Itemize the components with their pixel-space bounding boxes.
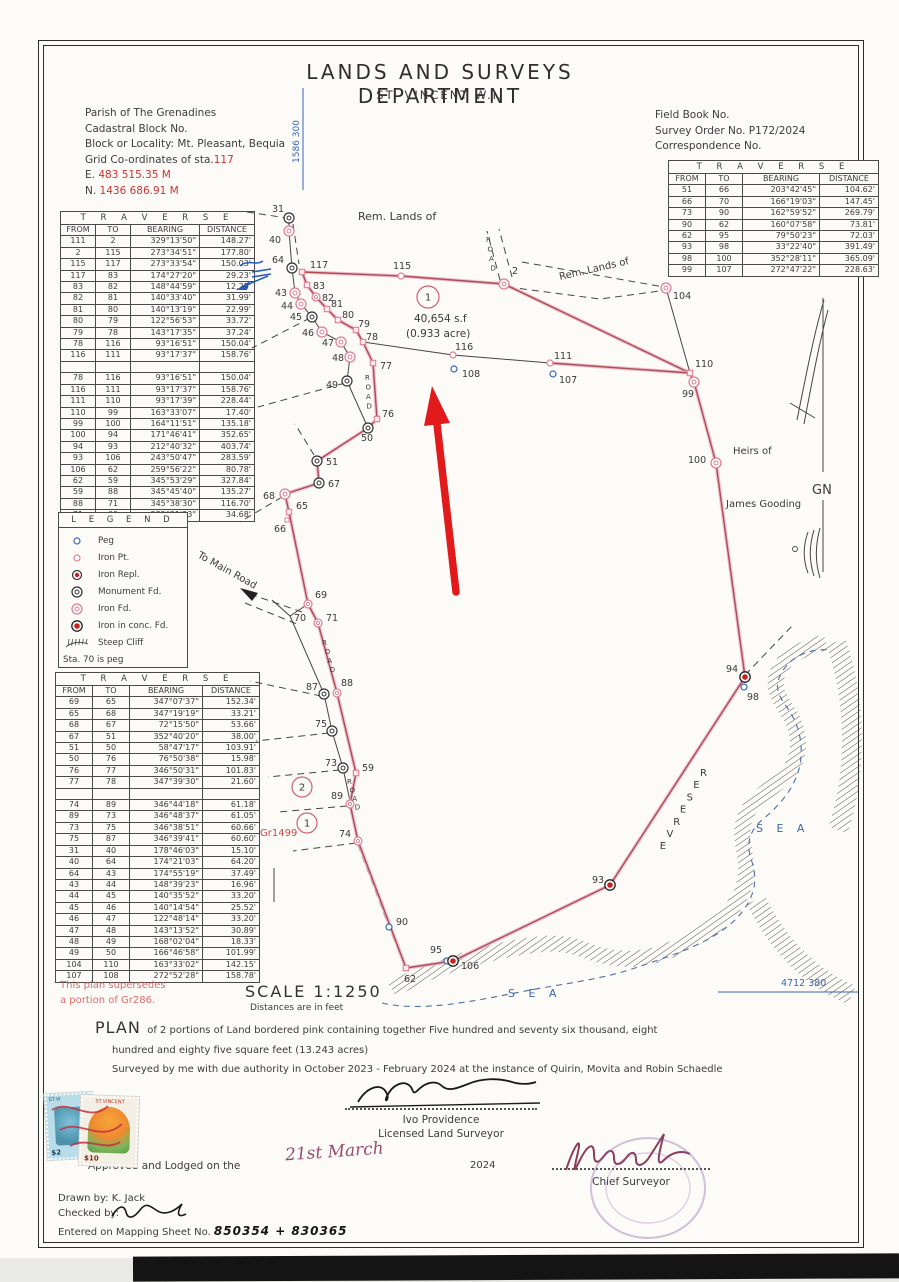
table-row: 1112329°13'50"148.27' xyxy=(61,236,255,247)
table-cell: 140°13'19" xyxy=(131,304,200,315)
legend-box: L E G E N D PegIron Pt.Iron Repl.Monumen… xyxy=(58,512,188,668)
table-cell: 66 xyxy=(669,196,706,207)
survey-order-line: Survey Order No. P172/2024 xyxy=(655,124,805,140)
table-cell: 110 xyxy=(96,396,131,407)
table-cell: 58°47'17" xyxy=(130,743,203,754)
legend-item-label: Monument Fd. xyxy=(98,587,161,597)
table-cell: 142.15' xyxy=(203,959,260,970)
table-cell xyxy=(96,361,131,372)
table-cell: 73 xyxy=(669,208,706,219)
table-cell: 228.63' xyxy=(820,265,879,276)
table-row: 5988345°45'40"135.27' xyxy=(61,487,255,498)
table-row: 4748143°13'52"30.89' xyxy=(56,925,260,936)
table-cell: 99 xyxy=(96,407,131,418)
table-cell: 59 xyxy=(96,475,131,486)
table-cell: 48 xyxy=(93,925,130,936)
table-cell: 95 xyxy=(706,231,743,242)
table-cell xyxy=(93,788,130,799)
table-cell: 178°46'03" xyxy=(130,845,203,856)
table-cell: 327.84' xyxy=(200,475,255,486)
table-row: 11111093°17'39"228.44' xyxy=(61,396,255,407)
table-cell: 89 xyxy=(56,811,93,822)
table-cell: 59 xyxy=(61,487,96,498)
table-cell: 21.60' xyxy=(203,777,260,788)
table-cell: 78 xyxy=(61,339,96,350)
table-cell: 89 xyxy=(93,800,130,811)
table-cell xyxy=(203,788,260,799)
table-cell: 93 xyxy=(96,441,131,452)
iron_conc-icon xyxy=(65,619,89,633)
table-cell: 62 xyxy=(706,219,743,230)
table-cell: 46 xyxy=(93,902,130,913)
table-title: T R A V E R S E xyxy=(56,673,260,686)
traverse-table-left-upper: T R A V E R S EFROMTOBEARINGDISTANCE1112… xyxy=(60,211,255,522)
table-cell: 104 xyxy=(56,959,93,970)
table-row: 2115273°34'51"177.80' xyxy=(61,247,255,258)
table-cell: 79 xyxy=(96,316,131,327)
table-cell: 162°59'52" xyxy=(743,208,820,219)
table-cell: 68 xyxy=(56,720,93,731)
table-cell: 122°48'14" xyxy=(130,914,203,925)
table-cell: 93°16'51" xyxy=(131,339,200,350)
table-cell: 70 xyxy=(706,196,743,207)
table-cell: 60.60' xyxy=(203,834,260,845)
legend-item-label: Iron Fd. xyxy=(98,604,131,614)
table-cell: 94 xyxy=(61,441,96,452)
table-cell: 99 xyxy=(669,265,706,276)
column-header: BEARING xyxy=(743,174,820,185)
table-row: 11783174°27'20"29.23' xyxy=(61,270,255,281)
legend-item-label: Iron Pt. xyxy=(98,553,129,563)
table-cell: 116.70' xyxy=(200,498,255,509)
table-cell: 33.21' xyxy=(203,708,260,719)
table-cell: 49 xyxy=(56,948,93,959)
table-cell: 106 xyxy=(61,464,96,475)
table-cell: 345°53'29" xyxy=(131,475,200,486)
legend-item: Iron Pt. xyxy=(59,549,187,566)
table-cell: 107 xyxy=(706,265,743,276)
legend-note: Sta. 70 is peg xyxy=(59,651,187,667)
column-header: BEARING xyxy=(131,225,200,236)
table-cell: 352°28'11" xyxy=(743,253,820,264)
table-cell: 347°39'30" xyxy=(130,777,203,788)
table-cell: 31.99' xyxy=(200,293,255,304)
table-row: 9493212°40'32"403.74' xyxy=(61,441,255,452)
table-cell xyxy=(131,361,200,372)
table-cell: 116 xyxy=(61,384,96,395)
table-cell: 203°42'45" xyxy=(743,185,820,196)
table-cell: 347°19'19" xyxy=(130,708,203,719)
table-cell: 80 xyxy=(96,304,131,315)
approved-year: 2024 xyxy=(470,1160,495,1171)
table-cell: 346°39'41" xyxy=(130,834,203,845)
table-row: 4344148°39'23"16.96' xyxy=(56,879,260,890)
table-cell: 177.80' xyxy=(200,247,255,258)
table-row: 7811693°16'51"150.04' xyxy=(61,373,255,384)
table-cell: 150.03' xyxy=(200,259,255,270)
table-cell: 346°38'51" xyxy=(130,822,203,833)
table-cell: 122°56'53" xyxy=(131,316,200,327)
table-cell: 18.33' xyxy=(203,936,260,947)
table-cell: 166°46'58" xyxy=(130,948,203,959)
table-cell: 391.49' xyxy=(820,242,879,253)
table-cell: 17.40' xyxy=(200,407,255,418)
table-cell: 69 xyxy=(56,697,93,708)
table-row: 6443174°55'19"37.49' xyxy=(56,868,260,879)
legend-item: Iron Fd. xyxy=(59,600,187,617)
table-row: 7677346°50'31"101.83' xyxy=(56,765,260,776)
table-cell: 212°40'32" xyxy=(131,441,200,452)
table-cell: 88 xyxy=(96,487,131,498)
table-cell: 62 xyxy=(96,464,131,475)
table-cell: 98 xyxy=(669,253,706,264)
table-cell: 15.10' xyxy=(203,845,260,856)
table-cell: 93 xyxy=(61,453,96,464)
table-row: 507676°50'38"15.98' xyxy=(56,754,260,765)
table-cell: 174°55'19" xyxy=(130,868,203,879)
legend-item: Monument Fd. xyxy=(59,583,187,600)
table-cell: 273°33'54" xyxy=(131,259,200,270)
table-cell: 174°27'20" xyxy=(131,270,200,281)
table-cell: 72.03' xyxy=(820,231,879,242)
table-cell: 79°50'23" xyxy=(743,231,820,242)
table-cell: 34.68' xyxy=(200,510,255,521)
traverse-table-right: T R A V E R S EFROMTOBEARINGDISTANCE5166… xyxy=(668,160,879,277)
drawn-by: Drawn by: K. Jack xyxy=(58,1193,145,1204)
table-row: 6568347°19'19"33.21' xyxy=(56,708,260,719)
table-cell: 116 xyxy=(61,350,96,361)
table-cell: 135.18' xyxy=(200,418,255,429)
table-cell: 101.99' xyxy=(203,948,260,959)
table-cell: 29.23' xyxy=(200,270,255,281)
table-cell: 117 xyxy=(61,270,96,281)
table-cell: 150.04' xyxy=(200,339,255,350)
table-row: 104110163°33'02"142.15' xyxy=(56,959,260,970)
table-row: 8281140°33'40"31.99' xyxy=(61,293,255,304)
table-cell: 37.49' xyxy=(203,868,260,879)
table-cell: 80.78' xyxy=(200,464,255,475)
table-cell: 31 xyxy=(56,845,93,856)
table-row: 4064174°21'03"64.20' xyxy=(56,857,260,868)
table-row: 7587346°39'41"60.60' xyxy=(56,834,260,845)
legend-item-label: Iron in conc. Fd. xyxy=(98,621,168,631)
table-row xyxy=(61,361,255,372)
grid-coords-line: Grid Co-ordinates of sta.117 xyxy=(85,153,285,169)
table-cell: 43 xyxy=(56,879,93,890)
table-row: 115117273°33'54"150.03' xyxy=(61,259,255,270)
table-cell: 76 xyxy=(56,765,93,776)
table-cell: 283.59' xyxy=(200,453,255,464)
table-row: 7489346°44'18"61.18' xyxy=(56,800,260,811)
table-row: 8079122°56'53"33.72' xyxy=(61,316,255,327)
legend-item-label: Peg xyxy=(98,536,114,546)
table-row: 99100164°11'51"135.18' xyxy=(61,418,255,429)
checked-by: Checked by: xyxy=(58,1208,119,1219)
table-cell: 37.24' xyxy=(200,327,255,338)
column-header: FROM xyxy=(56,686,93,697)
table-cell: 158.76' xyxy=(200,350,255,361)
table-cell: 168°02'04" xyxy=(130,936,203,947)
table-row: 99107272°47'22"228.63' xyxy=(669,265,879,276)
table-row: 7375346°38'51"60.66' xyxy=(56,822,260,833)
mapping-sheet-line: Entered on Mapping Sheet No. 850354 + 83… xyxy=(58,1224,348,1238)
table-cell: 273°34'51" xyxy=(131,247,200,258)
table-row: 9062160°07'58"73.81' xyxy=(669,219,879,230)
table-cell: 60.66' xyxy=(203,822,260,833)
table-cell: 33°22'40" xyxy=(743,242,820,253)
table-row: 7811693°16'51"150.04' xyxy=(61,339,255,350)
table-cell: 346°48'37" xyxy=(130,811,203,822)
table-cell: 98 xyxy=(706,242,743,253)
table-row: 8871345°38'30"116.70' xyxy=(61,498,255,509)
table-cell: 345°38'30" xyxy=(131,498,200,509)
table-cell: 104.62' xyxy=(820,185,879,196)
table-cell: 365.09' xyxy=(820,253,879,264)
table-row: 4445140°35'52"33.20' xyxy=(56,891,260,902)
table-cell: 62 xyxy=(61,475,96,486)
table-cell: 329°13'50" xyxy=(131,236,200,247)
parish-line: Parish of The Grenadines xyxy=(85,106,285,122)
table-cell: 46 xyxy=(56,914,93,925)
table-cell: 100 xyxy=(706,253,743,264)
table-cell xyxy=(56,788,93,799)
table-cell: 72°15'50" xyxy=(130,720,203,731)
table-title: T R A V E R S E xyxy=(669,161,879,174)
column-header: DISTANCE xyxy=(820,174,879,185)
table-cell: 82 xyxy=(96,282,131,293)
mapping-numbers-handwritten: 850354 + 830365 xyxy=(214,1224,348,1238)
table-cell: 88 xyxy=(61,498,96,509)
column-header: DISTANCE xyxy=(200,225,255,236)
table-cell: 33.20' xyxy=(203,914,260,925)
table-cell: 160°07'58" xyxy=(743,219,820,230)
table-cell: 93°17'37" xyxy=(131,350,200,361)
table-cell: 61.05' xyxy=(203,811,260,822)
table-cell: 82 xyxy=(61,293,96,304)
table-cell: 47 xyxy=(93,914,130,925)
table-cell: 33.72' xyxy=(200,316,255,327)
table-cell: 71 xyxy=(96,498,131,509)
table-cell: 64 xyxy=(56,868,93,879)
table-cell: 45 xyxy=(93,891,130,902)
table-cell: 166°19'03" xyxy=(743,196,820,207)
table-row: 3140178°46'03"15.10' xyxy=(56,845,260,856)
table-cell: 51 xyxy=(669,185,706,196)
table-cell: 80 xyxy=(61,316,96,327)
table-row: 5166203°42'45"104.62' xyxy=(669,185,879,196)
easting-line: E. 483 515.35 M xyxy=(85,168,285,184)
scale-label: SCALE 1:1250 xyxy=(245,982,382,1001)
table-cell: 115 xyxy=(96,247,131,258)
table-cell: 25.52' xyxy=(203,902,260,913)
stamp-right-country: ST.VINCENT xyxy=(83,1097,137,1106)
table-row: 11611193°17'37"158.76' xyxy=(61,384,255,395)
table-cell: 93 xyxy=(669,242,706,253)
table-row: 7978143°17'35"37.24' xyxy=(61,327,255,338)
table-row: 98100352°28'11"365.09' xyxy=(669,253,879,264)
column-header: TO xyxy=(96,225,131,236)
legend-item: Iron in conc. Fd. xyxy=(59,617,187,634)
table-row: 8382148°44'59"12.25' xyxy=(61,282,255,293)
table-cell: 40 xyxy=(56,857,93,868)
legend-item: Steep Cliff xyxy=(59,634,187,651)
table-cell: 163°33'07" xyxy=(131,407,200,418)
table-cell: 148°39'23" xyxy=(130,879,203,890)
legend-item-label: Iron Repl. xyxy=(98,570,140,580)
column-header: FROM xyxy=(669,174,706,185)
table-cell: 77 xyxy=(56,777,93,788)
table-cell: 110 xyxy=(61,407,96,418)
traverse-table-left-lower: T R A V E R S EFROMTOBEARINGDISTANCE6965… xyxy=(55,672,260,983)
scale-note: Distances are in feet xyxy=(250,1003,343,1013)
table-cell: 228.44' xyxy=(200,396,255,407)
table-cell: 61.18' xyxy=(203,800,260,811)
table-cell: 78 xyxy=(61,373,96,384)
surveyor-name: Ivo Providence xyxy=(345,1114,537,1126)
table-cell: 66 xyxy=(706,185,743,196)
table-cell: 73 xyxy=(56,822,93,833)
locality-line: Block or Locality: Mt. Pleasant, Bequia xyxy=(85,137,285,153)
table-cell: 79 xyxy=(61,327,96,338)
table-cell: 87 xyxy=(93,834,130,845)
table-row: 11611193°17'37"158.76' xyxy=(61,350,255,361)
table-cell: 2 xyxy=(61,247,96,258)
table-cell: 152.34' xyxy=(203,697,260,708)
table-row: 6751352°40'20"38.00' xyxy=(56,731,260,742)
table-cell: 106 xyxy=(96,453,131,464)
table-cell: 73 xyxy=(93,811,130,822)
table-cell: 147.45' xyxy=(820,196,879,207)
table-cell: 148°44'59" xyxy=(131,282,200,293)
table-cell: 100 xyxy=(61,430,96,441)
legend-item-label: Steep Cliff xyxy=(98,638,143,648)
table-cell: 140°33'40" xyxy=(131,293,200,304)
table-row: 7778347°39'30"21.60' xyxy=(56,777,260,788)
table-row: 6259345°53'29"327.84' xyxy=(61,475,255,486)
column-header: TO xyxy=(706,174,743,185)
survey-info-block: Field Book No. Survey Order No. P172/202… xyxy=(655,108,805,155)
column-header: TO xyxy=(93,686,130,697)
column-header: DISTANCE xyxy=(203,686,260,697)
table-row: 4546140°14'54"25.52' xyxy=(56,902,260,913)
table-cell: 81 xyxy=(61,304,96,315)
parish-info-block: Parish of The Grenadines Cadastral Block… xyxy=(85,106,285,199)
table-cell: 111 xyxy=(96,350,131,361)
table-cell: 90 xyxy=(669,219,706,230)
chief-signature-line xyxy=(552,1168,710,1170)
legend-items: PegIron Pt.Iron Repl.Monument Fd.Iron Fd… xyxy=(59,532,187,651)
table-cell: 51 xyxy=(93,731,130,742)
iron_repl-icon xyxy=(65,568,89,582)
table-cell: 111 xyxy=(61,396,96,407)
table-cell: 51 xyxy=(56,743,93,754)
table-cell: 50 xyxy=(93,743,130,754)
table-cell: 117 xyxy=(96,259,131,270)
table-cell: 143°13'52" xyxy=(130,925,203,936)
table-cell: 140°35'52" xyxy=(130,891,203,902)
table-cell: 164°11'51" xyxy=(131,418,200,429)
table-cell: 110 xyxy=(93,959,130,970)
iron_fd-icon xyxy=(65,602,89,616)
table-row: 4647122°48'14"33.20' xyxy=(56,914,260,925)
table-cell: 93°17'37" xyxy=(131,384,200,395)
table-cell: 47 xyxy=(56,925,93,936)
table-cell: 99 xyxy=(61,418,96,429)
table-cell: 90 xyxy=(706,208,743,219)
table-cell: 345°45'40" xyxy=(131,487,200,498)
table-cell: 77 xyxy=(93,765,130,776)
table-cell: 403.74' xyxy=(200,441,255,452)
table-cell: 50 xyxy=(56,754,93,765)
table-cell: 65 xyxy=(93,697,130,708)
table-cell: 101.83' xyxy=(203,765,260,776)
table-cell: 2 xyxy=(96,236,131,247)
table-row: 939833°22'40"391.49' xyxy=(669,242,879,253)
table-cell: 346°44'18" xyxy=(130,800,203,811)
table-cell: 150.04' xyxy=(200,373,255,384)
table-cell: 50 xyxy=(93,948,130,959)
column-header: BEARING xyxy=(130,686,203,697)
table-cell: 33.20' xyxy=(203,891,260,902)
postage-stamp-right: ST.VINCENT $10 xyxy=(79,1095,139,1167)
table-row: 4950166°46'58"101.99' xyxy=(56,948,260,959)
plan-lead: PLAN xyxy=(95,1018,141,1037)
table-cell: 12.25' xyxy=(200,282,255,293)
table-cell: 158.76' xyxy=(200,384,255,395)
field-book-line: Field Book No. xyxy=(655,108,805,124)
column-header: FROM xyxy=(61,225,96,236)
table-cell: 76°50'38" xyxy=(130,754,203,765)
table-cell: 148.27' xyxy=(200,236,255,247)
chief-title: Chief Surveyor xyxy=(552,1176,710,1188)
table-row: 629579°50'23"72.03' xyxy=(669,231,879,242)
photo-edge-shadow xyxy=(133,1253,899,1281)
table-cell: 15.98' xyxy=(203,754,260,765)
table-cell: 45 xyxy=(56,902,93,913)
northing-line: N. 1436 686.91 M xyxy=(85,184,285,200)
table-cell: 158.78' xyxy=(203,971,260,982)
table-cell: 163°33'02" xyxy=(130,959,203,970)
table-cell xyxy=(200,361,255,372)
table-cell: 243°50'47" xyxy=(131,453,200,464)
table-row: 7390162°59'52"269.79' xyxy=(669,208,879,219)
table-cell: 76 xyxy=(93,754,130,765)
table-cell: 78 xyxy=(93,777,130,788)
supersedes-note: This plan supersedes a portion of Gr286. xyxy=(60,978,166,1008)
survey-plan-page: { "header": { "title": "LANDS AND SURVEY… xyxy=(0,0,899,1280)
surveyor-signature-line xyxy=(345,1108,537,1110)
table-cell: 75 xyxy=(93,822,130,833)
table-cell: 135.27' xyxy=(200,487,255,498)
table-cell: 67 xyxy=(93,720,130,731)
table-cell: 74 xyxy=(56,800,93,811)
table-cell: 83 xyxy=(61,282,96,293)
stamp-left-value: $2 xyxy=(51,1149,61,1157)
table-cell: 53.66' xyxy=(203,720,260,731)
plan-description: PLAN of 2 portions of Land bordered pink… xyxy=(95,1018,723,1075)
table-cell: 78 xyxy=(96,327,131,338)
table-row: 515058°47'17"103.91' xyxy=(56,743,260,754)
table-cell: 43 xyxy=(93,868,130,879)
table-row: 4849168°02'04"18.33' xyxy=(56,936,260,947)
table-cell: 352.65' xyxy=(200,430,255,441)
table-cell: 352°40'20" xyxy=(130,731,203,742)
table-cell: 259°56'22" xyxy=(131,464,200,475)
table-cell: 116 xyxy=(96,373,131,384)
table-cell: 67 xyxy=(56,731,93,742)
table-row: 11099163°33'07"17.40' xyxy=(61,407,255,418)
table-row: 8973346°48'37"61.05' xyxy=(56,811,260,822)
